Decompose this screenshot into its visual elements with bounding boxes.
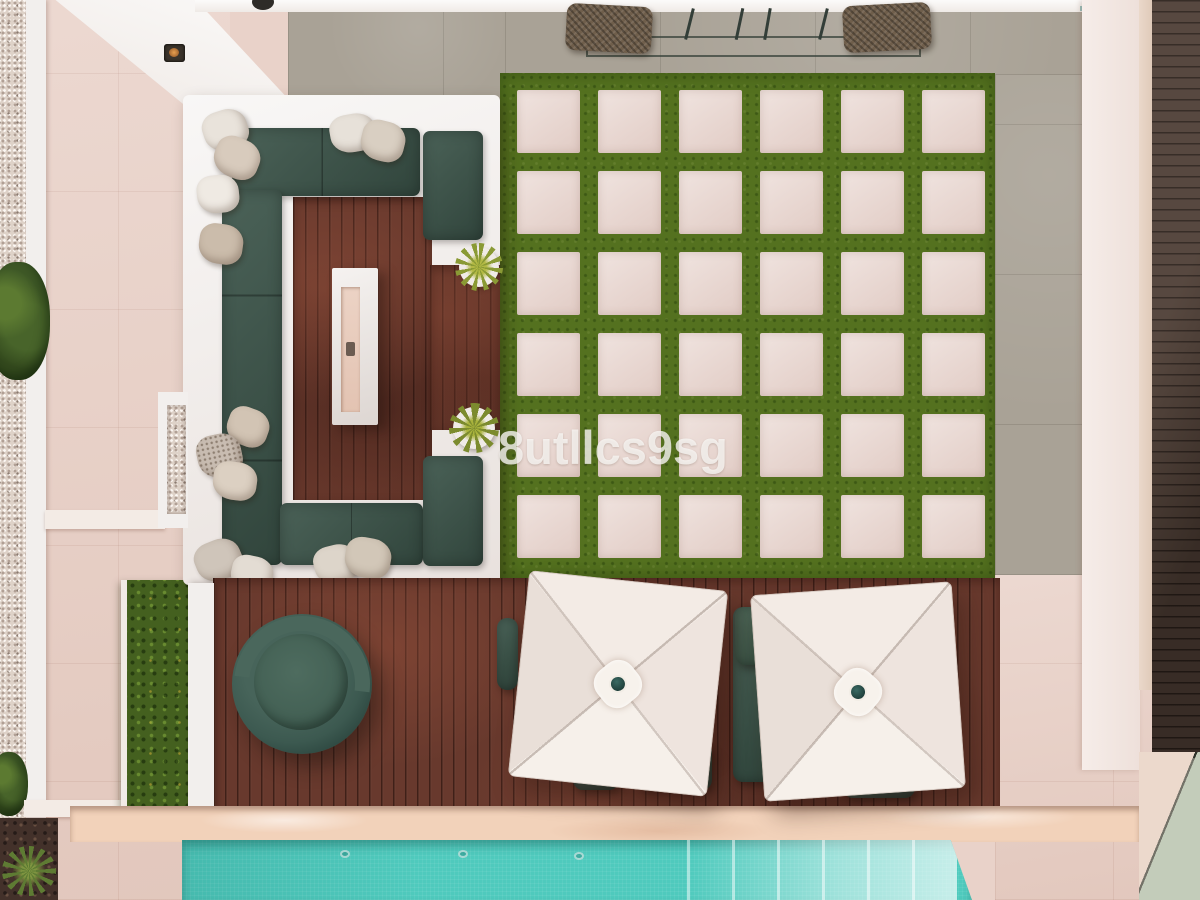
paver-tile: [922, 495, 985, 558]
rattan-chair-right: [842, 2, 932, 54]
fire-pit-table: [332, 268, 378, 425]
plant-leaves: [455, 243, 503, 291]
paver-tile: [517, 495, 580, 558]
agave-plant: [2, 846, 56, 896]
paver-tile: [679, 495, 742, 558]
pool-jet: [574, 852, 584, 860]
paver-tile: [841, 90, 904, 153]
paver-tile: [760, 252, 823, 315]
spotlight-glow: [169, 48, 179, 57]
wall-band-right: [1082, 0, 1140, 770]
gravel-strip: [0, 0, 27, 830]
fire-pit-handle: [346, 342, 355, 356]
paver-tile: [598, 171, 661, 234]
daybed-seat: [254, 634, 348, 730]
paver-tile: [922, 333, 985, 396]
paver-tile: [598, 90, 661, 153]
paver-tile: [598, 252, 661, 315]
round-daybed: [232, 614, 372, 754]
paver-tile: [841, 171, 904, 234]
spotlight-fixture: [164, 44, 185, 62]
pebble-inset-strip: [167, 405, 186, 514]
paver-tile: [922, 90, 985, 153]
pool-jet: [458, 850, 468, 858]
sun-lounger-edge: [497, 618, 518, 690]
stone-tiles-right: [995, 75, 1085, 575]
watermark-text: 8utllcs9sg: [498, 420, 728, 475]
paver-tile: [922, 171, 985, 234]
paver-tile: [679, 171, 742, 234]
swimming-pool: [182, 840, 972, 900]
rattan-chair-left: [565, 3, 653, 54]
paver-tile: [679, 333, 742, 396]
paver-tile: [841, 252, 904, 315]
sofa-cushion-bottom-right: [423, 456, 483, 566]
parasol-right: [750, 581, 966, 802]
pool-jet: [340, 850, 350, 858]
hedge-planter: [121, 580, 189, 830]
paver-tile: [517, 252, 580, 315]
pool-coping: [70, 806, 1140, 842]
sofa-cushion-top-right: [423, 131, 483, 240]
paver-tile: [841, 414, 904, 477]
paver-tile: [841, 495, 904, 558]
paver-tile: [760, 495, 823, 558]
potted-plant-upper: [459, 247, 499, 287]
paver-tile: [679, 90, 742, 153]
neighbour-deck: [1152, 0, 1200, 758]
paver-grid: [500, 73, 995, 578]
stone-tiles-top-left: [288, 8, 505, 103]
paver-tile: [922, 414, 985, 477]
paver-tile: [517, 90, 580, 153]
pool-steps: [687, 840, 957, 900]
paver-tile: [598, 495, 661, 558]
planter-wall: [26, 0, 46, 830]
paver-tile: [760, 414, 823, 477]
paver-tile: [679, 252, 742, 315]
aerial-photo-villa-terrace: 8utllcs9sg: [0, 0, 1200, 900]
paver-tile: [922, 252, 985, 315]
paver-tile: [598, 333, 661, 396]
glass-corner: [1139, 752, 1200, 900]
deck-side-curb: [188, 583, 214, 810]
paver-tile: [517, 333, 580, 396]
parasol-left: [508, 570, 729, 797]
paver-tile: [760, 90, 823, 153]
paver-tile: [760, 171, 823, 234]
paver-tile: [760, 333, 823, 396]
potted-plant-lower: [453, 407, 495, 449]
walkway-step: [45, 510, 165, 529]
paver-tile: [517, 171, 580, 234]
trim-strip-right: [1139, 0, 1153, 690]
paver-tile: [841, 333, 904, 396]
plant-leaves: [449, 403, 499, 453]
